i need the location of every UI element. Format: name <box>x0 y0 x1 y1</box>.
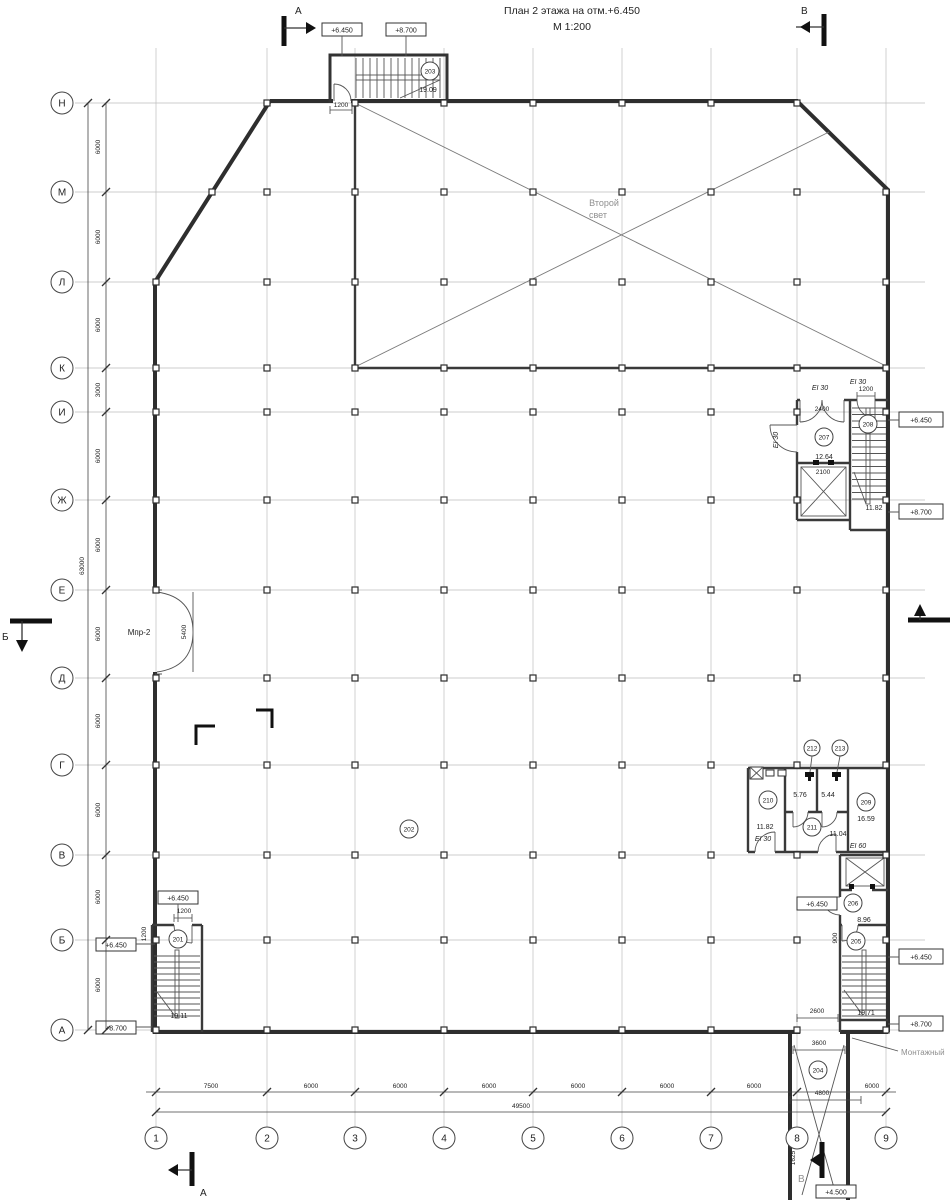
room-213-number: 213 <box>835 746 846 753</box>
fire-ei30-4: EI 30 <box>755 836 771 843</box>
room-213-area: 5.44 <box>821 792 835 799</box>
column <box>530 762 536 768</box>
column <box>619 937 625 943</box>
left-bay-dim: 6000 <box>95 139 102 154</box>
fire-ei30-1: EI 30 <box>812 385 828 392</box>
column <box>794 587 800 593</box>
room-210-number: 210 <box>763 798 774 805</box>
dim-1200b-line <box>857 392 875 400</box>
dim-1200: 1200 <box>334 102 349 109</box>
column <box>530 497 536 503</box>
sink-1 <box>766 770 774 776</box>
section-arrow <box>16 640 28 652</box>
elev-8700-205: +8.700 <box>910 1022 932 1029</box>
elev-6450-206: +6.450 <box>806 902 828 909</box>
block-207-208: 208 11.82 207 12.64 2400 2100 EI 30 EI 3… <box>770 379 943 530</box>
bottom-bay-dim: 6000 <box>304 1083 319 1090</box>
stair-205-treads <box>842 956 886 1016</box>
gate-mpr2: Мпр-2 5400 <box>128 590 193 674</box>
column <box>153 497 159 503</box>
bottom-bay-dim: 6000 <box>747 1083 762 1090</box>
dim-2400: 2400 <box>815 406 830 413</box>
left-bay-dim: 6000 <box>95 802 102 817</box>
room-202-number: 202 <box>404 827 415 834</box>
column <box>883 587 889 593</box>
room-203-number: 203 <box>425 69 436 76</box>
column <box>619 189 625 195</box>
column <box>530 852 536 858</box>
axis-col-label: 8 <box>794 1134 800 1145</box>
elev-6450-r: +6.450 <box>910 418 932 425</box>
column <box>883 1027 889 1033</box>
column <box>794 409 800 415</box>
left-bay-dim: 6000 <box>95 448 102 463</box>
column <box>530 409 536 415</box>
axis-col-label: 6 <box>619 1134 625 1145</box>
column <box>794 365 800 371</box>
section-arrow <box>914 604 926 616</box>
left-bay-dim: 6000 <box>95 626 102 641</box>
left-bay-dim: 6000 <box>95 977 102 992</box>
room-201-number: 201 <box>173 937 184 944</box>
room-208-area: 11.82 <box>866 505 883 512</box>
column <box>619 1027 625 1033</box>
stair-201-treads <box>154 956 200 1016</box>
column <box>153 675 159 681</box>
elev-8700: +8.700 <box>395 28 417 35</box>
elev-6450: +6.450 <box>331 28 353 35</box>
montage-leader <box>852 1038 898 1051</box>
column <box>708 497 714 503</box>
column <box>209 189 215 195</box>
column <box>883 937 889 943</box>
elev-8700-r: +8.700 <box>910 510 932 517</box>
column <box>352 587 358 593</box>
section-mark-a-bottom: А <box>168 1152 207 1199</box>
room-206-area: 8.96 <box>857 917 871 924</box>
dim-1200c: 1200 <box>177 908 192 915</box>
axis-row-label: Б <box>59 936 66 947</box>
left-dimensions: 6000 6000 6000 3000 6000 6000 6000 6000 … <box>79 99 110 1034</box>
elevator-door-jamb <box>870 884 875 889</box>
column <box>264 365 270 371</box>
bottom-bay-dim: 6000 <box>571 1083 586 1090</box>
column <box>794 1027 800 1033</box>
title-line1: План 2 этажа на отм.+6.450 <box>504 5 640 17</box>
column <box>153 937 159 943</box>
column <box>352 1027 358 1033</box>
column <box>619 409 625 415</box>
column <box>352 497 358 503</box>
column <box>441 497 447 503</box>
room-204-number: 204 <box>813 1068 824 1075</box>
column <box>352 100 358 106</box>
column <box>153 1027 159 1033</box>
column <box>883 852 889 858</box>
room-211-number: 211 <box>807 825 818 832</box>
left-bay-dim: 6000 <box>95 537 102 552</box>
section-arrow <box>800 21 810 33</box>
column <box>441 587 447 593</box>
column <box>708 937 714 943</box>
elevator-door-jamb <box>849 884 854 889</box>
axis-row-label: И <box>58 408 65 419</box>
toilet-212 <box>805 772 814 781</box>
floor-plan-svg: План 2 этажа на отм.+6.450 М 1:200 Второ… <box>0 0 952 1200</box>
elevator-shaft-2-cross <box>846 858 884 886</box>
column <box>794 189 800 195</box>
column <box>794 852 800 858</box>
room-203-area: 19.09 <box>419 87 437 94</box>
column <box>441 937 447 943</box>
axis-row-label: М <box>58 188 66 199</box>
column-axis-bubbles: 1 2 3 4 5 6 7 8 9 <box>145 1127 897 1149</box>
column <box>619 852 625 858</box>
axis-bubbles: Н М Л К И Ж Е Д Г В Б А 1 2 3 4 5 6 7 8 … <box>51 92 897 1149</box>
column <box>708 762 714 768</box>
section-mark-b-right <box>908 604 950 620</box>
room-208-number: 208 <box>863 422 874 429</box>
column <box>352 409 358 415</box>
section-letter-b-left: Б <box>2 632 9 643</box>
section-letter-a-bottom: А <box>200 1188 207 1199</box>
column <box>264 762 270 768</box>
fire-ei30-2: EI 30 <box>850 379 866 386</box>
section-arrow <box>168 1164 178 1176</box>
column <box>883 365 889 371</box>
column <box>352 365 358 371</box>
room-212-area: 5.76 <box>793 792 807 799</box>
column <box>708 852 714 858</box>
title-scale: М 1:200 <box>553 21 591 33</box>
column <box>708 587 714 593</box>
block-201: 201 19.11 1200 1200 +6.450 +6.450 +8.700 <box>96 891 202 1034</box>
dim-1625: 1625 <box>790 1150 797 1165</box>
door-213 <box>822 812 837 827</box>
room-207-area: 12.64 <box>815 454 833 461</box>
column <box>619 365 625 371</box>
dim-4800-line <box>790 1096 861 1104</box>
column <box>264 409 270 415</box>
axis-col-label: 1 <box>153 1134 159 1145</box>
dim-1200d: 1200 <box>141 926 148 941</box>
column <box>441 100 447 106</box>
column <box>619 675 625 681</box>
axis-row-label: Л <box>59 278 66 289</box>
exterior-walls <box>155 101 888 1032</box>
column <box>153 852 159 858</box>
dim-1200b: 1200 <box>859 386 874 393</box>
dim-3600-line <box>793 1046 845 1054</box>
room-210-area: 11.82 <box>757 824 774 831</box>
elev-6450-201: +6.450 <box>167 896 189 903</box>
column <box>153 587 159 593</box>
column <box>264 1027 270 1033</box>
column <box>794 937 800 943</box>
stair-201-stringer <box>175 950 179 1018</box>
dim-4800: 4800 <box>815 1090 830 1097</box>
column <box>883 675 889 681</box>
column <box>352 937 358 943</box>
axis-col-label: 3 <box>352 1134 358 1145</box>
elev-4500: +4.500 <box>825 1190 847 1197</box>
section-mark-b-left: Б <box>2 621 52 652</box>
toilet-213 <box>832 772 841 781</box>
column <box>619 279 625 285</box>
room-207-number: 207 <box>819 435 830 442</box>
column <box>153 365 159 371</box>
column <box>352 852 358 858</box>
column <box>883 409 889 415</box>
bottom-dimensions: 7500 6000 6000 6000 6000 6000 6000 6000 … <box>146 1083 896 1116</box>
column <box>883 762 889 768</box>
bottom-bay-dim: 6000 <box>482 1083 497 1090</box>
toilet-leaders <box>810 756 840 772</box>
column <box>883 279 889 285</box>
column <box>708 100 714 106</box>
bottom-total-dim: 49500 <box>512 1103 530 1110</box>
axis-row-label: Ж <box>57 496 67 507</box>
void-label-2: свет <box>589 210 607 220</box>
column <box>794 279 800 285</box>
section-mark-a-top: А <box>284 6 316 46</box>
room-205-area: 19.71 <box>857 1010 875 1017</box>
column <box>530 189 536 195</box>
axis-col-label: 4 <box>441 1134 447 1145</box>
column <box>153 409 159 415</box>
floor-plan-page: План 2 этажа на отм.+6.450 М 1:200 Второ… <box>0 0 952 1200</box>
column <box>441 279 447 285</box>
column <box>530 937 536 943</box>
column <box>264 937 270 943</box>
block-209-213: 212 213 5.76 5.44 210 11.82 EI 30 211 11… <box>748 740 888 852</box>
column <box>708 409 714 415</box>
column <box>352 675 358 681</box>
column <box>441 189 447 195</box>
row-axis-bubbles: Н М Л К И Ж Е Д Г В Б А <box>51 92 73 1041</box>
column <box>352 189 358 195</box>
axis-row-label: Е <box>59 586 66 597</box>
dim-3600: 3600 <box>812 1040 827 1047</box>
left-total-dim: 63000 <box>79 557 86 575</box>
section-marks: А В Б А В <box>2 6 950 1199</box>
column <box>441 409 447 415</box>
column <box>441 1027 447 1033</box>
column <box>530 1027 536 1033</box>
elev-6450-left: +6.450 <box>105 943 127 950</box>
column <box>708 675 714 681</box>
block-204: 3600 204 4800 1625 +4.500 Монтажный <box>790 1032 945 1200</box>
column <box>264 100 270 106</box>
structural-columns <box>153 100 889 1033</box>
column <box>619 497 625 503</box>
corner-mark-2 <box>256 710 272 728</box>
axis-row-label: А <box>59 1026 66 1037</box>
column <box>153 279 159 285</box>
column <box>264 587 270 593</box>
drawing-title: План 2 этажа на отм.+6.450 М 1:200 <box>504 5 640 33</box>
axis-row-label: Д <box>59 674 66 685</box>
column <box>619 100 625 106</box>
column <box>530 365 536 371</box>
dim-2600-line <box>797 1014 838 1022</box>
column <box>883 189 889 195</box>
section-letter-a-top: А <box>295 6 302 17</box>
montage-label: Монтажный <box>901 1048 945 1057</box>
column <box>264 279 270 285</box>
column <box>708 189 714 195</box>
dim-2600: 2600 <box>810 1008 825 1015</box>
bottom-bay-dim: 6000 <box>865 1083 880 1090</box>
sink-2 <box>778 770 786 776</box>
axis-col-label: 2 <box>264 1134 270 1145</box>
section-letter-v-bottom: В <box>798 1174 805 1185</box>
axis-col-label: 5 <box>530 1134 536 1145</box>
column <box>619 587 625 593</box>
column <box>794 497 800 503</box>
gate-label: Мпр-2 <box>128 628 151 637</box>
column <box>708 279 714 285</box>
column <box>708 1027 714 1033</box>
room-209-area: 16.59 <box>857 816 875 823</box>
room-201-area: 19.11 <box>171 1013 188 1020</box>
left-bay-dim: 3000 <box>95 382 102 397</box>
axis-row-label: К <box>59 364 65 375</box>
column <box>530 279 536 285</box>
column <box>441 852 447 858</box>
dim-2100: 2100 <box>816 469 831 476</box>
dim-900: 900 <box>832 932 839 943</box>
column <box>794 100 800 106</box>
void-label-1: Второй <box>589 198 619 208</box>
column <box>352 762 358 768</box>
column <box>441 762 447 768</box>
room-212-number: 212 <box>807 746 818 753</box>
column <box>530 675 536 681</box>
axis-row-label: Н <box>58 99 65 110</box>
column <box>441 365 447 371</box>
column <box>264 852 270 858</box>
room-206-number: 206 <box>848 901 859 908</box>
room-209-number: 209 <box>861 800 872 807</box>
left-bay-dim: 6000 <box>95 889 102 904</box>
hall-202: 202 <box>400 820 418 838</box>
dim-5400: 5400 <box>181 624 188 639</box>
bottom-bay-dim: 6000 <box>660 1083 675 1090</box>
column <box>153 762 159 768</box>
column <box>264 189 270 195</box>
column <box>619 762 625 768</box>
left-bay-dim: 6000 <box>95 317 102 332</box>
section-arrow <box>810 1152 822 1168</box>
section-arrow <box>306 22 316 34</box>
axis-col-label: 9 <box>883 1134 889 1145</box>
column <box>794 762 800 768</box>
column <box>441 675 447 681</box>
column <box>264 497 270 503</box>
fire-ei30-3: EI 30 <box>773 432 780 448</box>
column <box>530 587 536 593</box>
column <box>264 675 270 681</box>
corner-mark-1 <box>196 726 215 745</box>
elev-leaders <box>342 36 406 56</box>
fire-ei60: EI 60 <box>850 843 866 850</box>
bottom-bay-dim: 7500 <box>204 1083 219 1090</box>
axis-row-label: Г <box>59 761 65 772</box>
bottom-bay-dim: 6000 <box>393 1083 408 1090</box>
elev-8700-left: +8.700 <box>105 1026 127 1033</box>
room-205-number: 205 <box>851 939 862 946</box>
section-letter-v-top: В <box>801 6 808 17</box>
block-205-206: 205 19.71 206 8.96 900 +6.450 +6.450 +8.… <box>797 855 943 1032</box>
column <box>883 497 889 503</box>
stair-203-door <box>334 84 351 101</box>
room-211-area: 11.04 <box>830 831 847 838</box>
column <box>352 279 358 285</box>
axis-row-label: В <box>59 851 66 862</box>
elev-6450-205: +6.450 <box>910 955 932 962</box>
column <box>708 365 714 371</box>
dim-1200c-line <box>174 914 192 922</box>
column <box>794 675 800 681</box>
corner-marks <box>196 710 272 745</box>
axis-col-label: 7 <box>708 1134 714 1145</box>
stair-205-stringer <box>862 950 866 1016</box>
left-bay-dim: 6000 <box>95 713 102 728</box>
building-outline: Второй свет <box>155 101 888 1032</box>
atrium-cross-lines <box>357 104 886 366</box>
section-mark-v-top: В <box>796 6 824 46</box>
column <box>530 100 536 106</box>
left-bay-dim: 6000 <box>95 229 102 244</box>
